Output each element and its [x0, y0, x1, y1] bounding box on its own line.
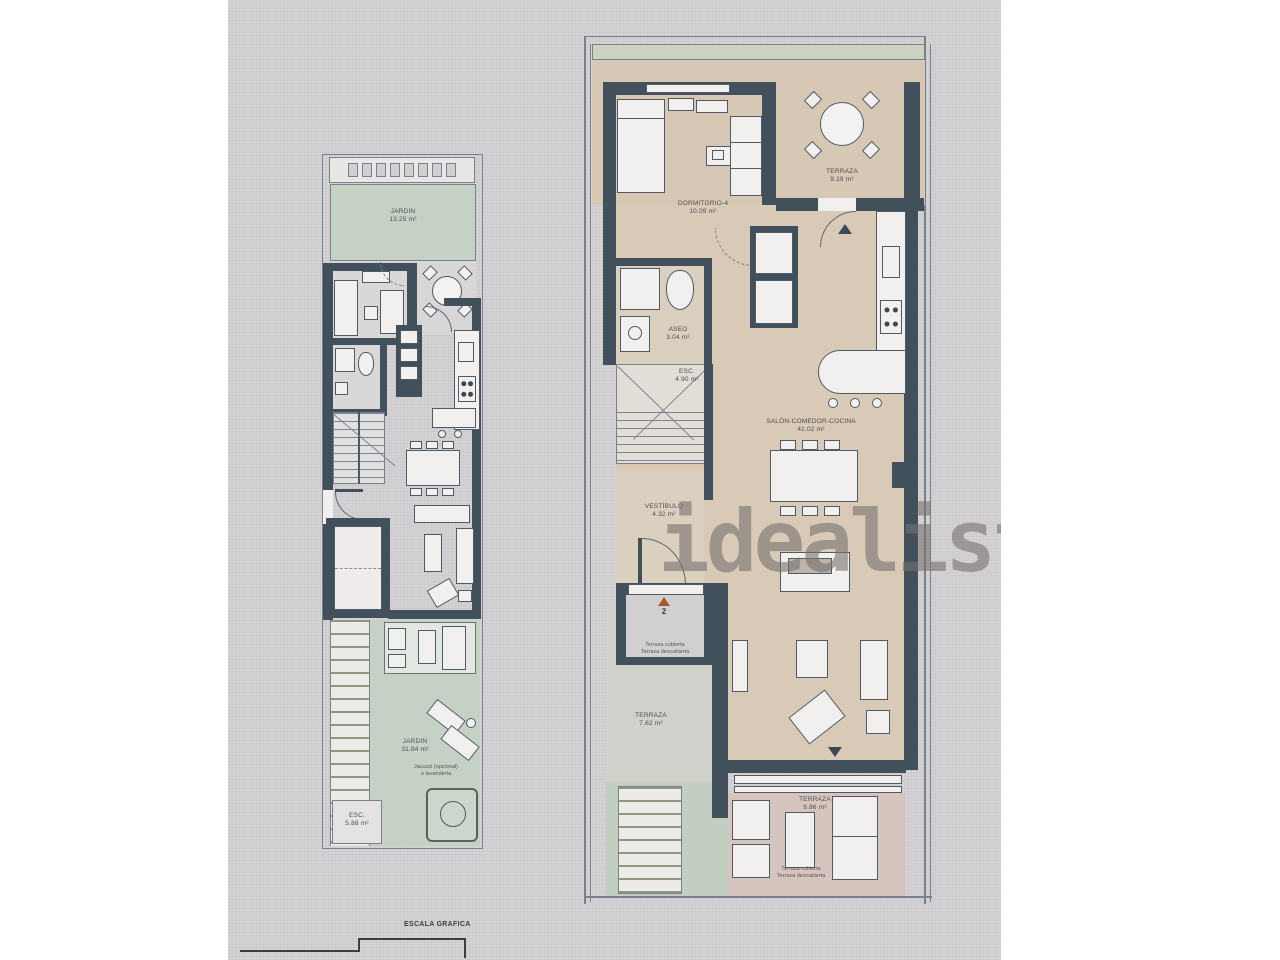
kitchen-island [432, 408, 476, 428]
pergola-slat [362, 163, 372, 177]
chair [426, 488, 438, 496]
terrace-step [734, 775, 902, 784]
wall [444, 298, 481, 306]
chair [442, 488, 454, 496]
dormitorio-label: DORMITORIO-4 10.09 m² [658, 200, 748, 216]
chair [780, 440, 796, 450]
outdoor-lounger [418, 630, 436, 664]
scale-riser [358, 938, 360, 952]
wall [904, 82, 920, 205]
deck-slats [618, 786, 682, 894]
scale-segment [240, 950, 360, 952]
stool [850, 398, 860, 408]
plot-line [590, 44, 591, 902]
plot-line [584, 36, 586, 904]
stool [454, 430, 462, 438]
dining-table [406, 450, 460, 486]
garden-top-label: JARDIN 13.25 m² [360, 208, 446, 224]
garden-bottom-label: JARDIN 31.84 m² [380, 738, 450, 754]
door-gap [818, 198, 856, 211]
wall [616, 258, 712, 266]
wall [892, 462, 918, 488]
shower [335, 348, 355, 372]
wardrobe-slot [400, 330, 418, 344]
pergola-slat [348, 163, 358, 177]
wardrobe [730, 116, 762, 196]
outdoor-chair [732, 800, 770, 840]
wardrobe-divider [731, 142, 761, 143]
screenshot-canvas: JARDIN 13.25 m² [0, 0, 1280, 960]
wardrobe-slot [400, 348, 418, 362]
chair [364, 306, 378, 320]
toilet [358, 352, 374, 376]
sofa [456, 528, 474, 584]
wall [603, 82, 616, 365]
scale-end-tick [464, 938, 466, 958]
pergola-slat [432, 163, 442, 177]
outdoor-table [785, 812, 815, 868]
wall [388, 610, 481, 619]
stool [828, 398, 838, 408]
bed-pillow [617, 99, 665, 119]
chair [802, 440, 818, 450]
wall [762, 82, 776, 205]
outdoor-lounger [442, 626, 466, 670]
outdoor-chair [388, 628, 406, 650]
closet-slot [755, 280, 793, 324]
shelf [668, 98, 694, 111]
side-table-inner [712, 150, 724, 160]
side-table [866, 710, 890, 734]
stairs-treads [617, 412, 711, 463]
chair [442, 441, 454, 449]
lounger [796, 640, 828, 678]
entry-arrow [838, 224, 852, 234]
closet-slot [755, 232, 793, 274]
esc-label-left: ESC. 5.88 m² [334, 812, 380, 828]
parasol [466, 718, 476, 728]
pergola-strip [329, 157, 475, 183]
toilet [666, 270, 694, 310]
terrace-note: Terraza cubierta Terraza descubierta [758, 866, 844, 879]
wall [380, 338, 387, 416]
stool [872, 398, 882, 408]
wall [712, 583, 728, 818]
floorplan-photo: JARDIN 13.25 m² [228, 0, 1001, 960]
lounger-divider [832, 836, 878, 837]
pergola-slat [390, 163, 400, 177]
desk [334, 280, 358, 336]
exit-arrow [828, 747, 842, 757]
plot-line [930, 44, 931, 902]
outdoor-chair [388, 654, 406, 668]
salon-label: SALÓN-COMEDOR-COCINA 41.02 m² [756, 418, 866, 434]
entry-marker-triangle [658, 597, 670, 606]
wardrobe-divider [731, 168, 761, 169]
wardrobe-slot [400, 366, 418, 380]
jacuzzi-note: Jacuzzi (opcional) o lavandería [394, 764, 478, 777]
wall [407, 263, 417, 325]
wall [704, 258, 712, 364]
entry-number: 2 [658, 607, 670, 617]
dashed-line [335, 568, 381, 569]
chair [426, 441, 438, 449]
idealista-watermark: idealista [658, 492, 1001, 592]
chair [824, 440, 840, 450]
scale-segment [358, 938, 466, 940]
stairs-rail [358, 412, 360, 484]
terraza-mid-label: TERRAZA 7.62 m² [626, 712, 676, 728]
chair [410, 488, 422, 496]
stairs-rail [704, 364, 713, 500]
kitchen-island [818, 350, 906, 394]
wall [728, 760, 906, 773]
pergola-slat [376, 163, 386, 177]
scale-label: ESCALA GRAFICA [404, 921, 474, 928]
terrace-step [734, 786, 902, 793]
sofa [414, 505, 470, 523]
kitchen-sink [458, 342, 474, 362]
sofa [732, 640, 748, 692]
sink [335, 382, 348, 395]
window [646, 84, 730, 93]
stove [880, 300, 902, 334]
plot-line [586, 896, 932, 898]
kitchen-sink [882, 246, 900, 278]
terraza-top-label: TERRAZA 9.19 m² [812, 168, 872, 184]
side-table [458, 590, 472, 602]
stove [458, 376, 476, 402]
stool [438, 430, 446, 438]
porch-note: Terraza cubierta Terraza descubierta [622, 642, 708, 655]
shower [620, 268, 660, 310]
hedge-strip [592, 44, 925, 60]
pergola-slat [446, 163, 456, 177]
pergola-slat [418, 163, 428, 177]
sofa [424, 534, 442, 572]
pergola-slat [404, 163, 414, 177]
plot-line [586, 36, 926, 37]
aseo-label: ASEO 3.04 m² [656, 326, 700, 342]
terrace-round-table [820, 102, 864, 146]
shelf [696, 100, 728, 113]
sofa [860, 640, 888, 700]
jacuzzi-circle [440, 801, 466, 827]
chair [410, 441, 422, 449]
sink [628, 326, 642, 340]
